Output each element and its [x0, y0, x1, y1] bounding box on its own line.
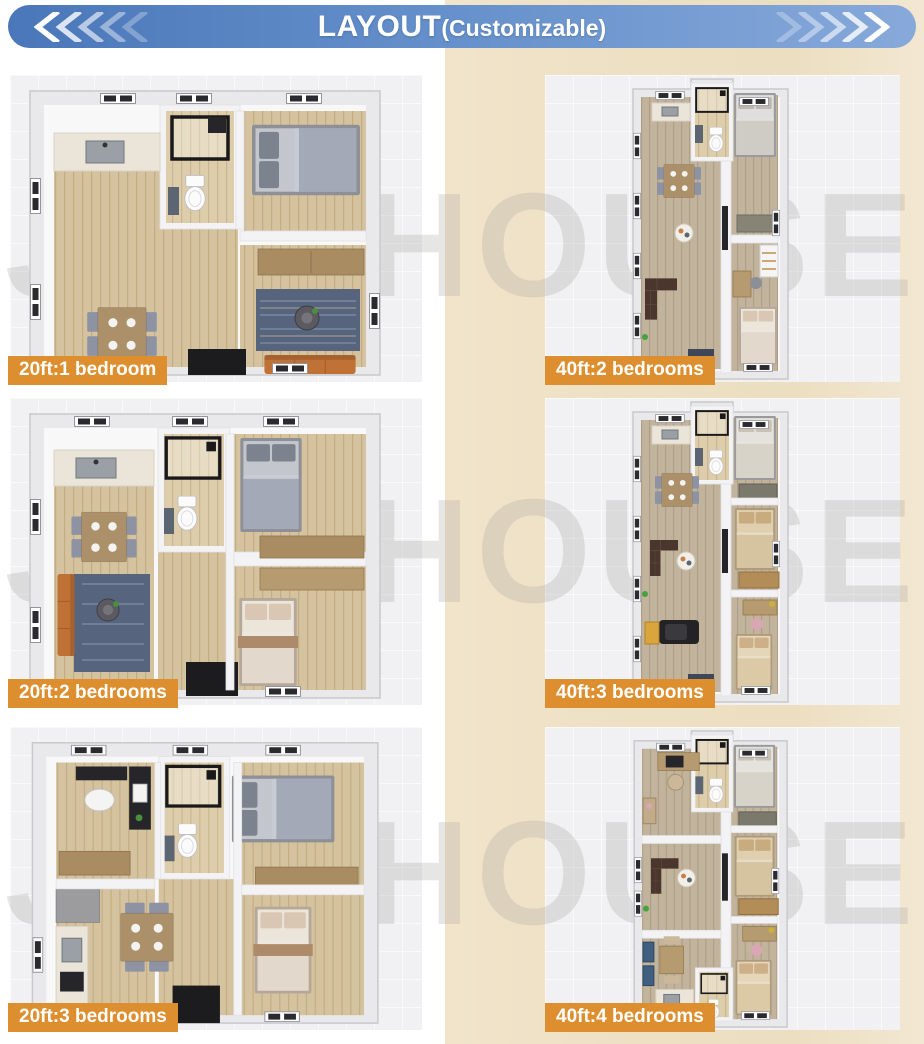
- wardrobe: [260, 536, 364, 558]
- header-banner: LAYOUT(Customizable): [8, 5, 916, 48]
- bathroom: [691, 735, 732, 812]
- dining-set: [121, 903, 174, 972]
- sofa: [57, 574, 74, 656]
- floorplan-panel-20ft-2-bedrooms: [10, 398, 422, 705]
- dining-set: [71, 512, 136, 562]
- bathroom: [159, 757, 230, 879]
- dining-set: [655, 473, 699, 506]
- side-table: [675, 224, 693, 242]
- floorplan-panel-40ft-4-bedrooms: [545, 727, 900, 1030]
- plant: [643, 906, 649, 912]
- wardrobe: [737, 215, 777, 232]
- tv-panel: [722, 529, 728, 573]
- floorplan-40ft-3-bedrooms-image: [545, 398, 900, 705]
- bed: [252, 125, 360, 195]
- bed: [254, 907, 313, 994]
- page-title-main: LAYOUT: [318, 10, 442, 43]
- floorplan-panel-20ft-1-bedroom: [10, 75, 422, 382]
- bed: [240, 438, 301, 532]
- side-table: [677, 552, 695, 570]
- massage-chair: [645, 620, 699, 644]
- dining-set: [657, 164, 701, 197]
- chest: [739, 899, 778, 915]
- bathroom: [160, 105, 240, 229]
- bed: [735, 836, 775, 897]
- wardrobe: [260, 568, 364, 590]
- plan-label-20ft-1-bedroom: 20ft:1 bedroom: [8, 356, 167, 385]
- door-mat: [188, 349, 246, 375]
- dining-set: [87, 308, 157, 361]
- kitchen: [652, 426, 690, 444]
- kitchen: [54, 450, 154, 486]
- floorplan-20ft-3-bedrooms-image: [10, 727, 422, 1030]
- bathroom: [691, 406, 733, 484]
- plant: [642, 591, 648, 597]
- tv-panel: [722, 853, 728, 900]
- floorplan-panel-20ft-3-bedrooms: [10, 727, 422, 1030]
- bed: [736, 634, 773, 690]
- bed: [232, 775, 335, 842]
- floorplan-panel-40ft-2-bedrooms: [545, 75, 900, 382]
- page-title: LAYOUT(Customizable): [8, 10, 916, 44]
- plant: [642, 334, 648, 340]
- bed: [238, 598, 298, 686]
- bed: [735, 508, 775, 570]
- bathroom: [691, 83, 733, 161]
- bed: [736, 960, 772, 1015]
- kitchen: [54, 133, 160, 171]
- plan-label-20ft-2-bedrooms: 20ft:2 bedrooms: [8, 679, 178, 708]
- floorplan-20ft-1-bedroom-image: [10, 75, 422, 382]
- plan-label-40ft-3-bedrooms: 40ft:3 bedrooms: [545, 679, 715, 708]
- floorplan-40ft-4-bedrooms-image: [545, 727, 900, 1030]
- layout-poster: JOY HOUSE JOY HOUSE JOY HOUSE LAYOUT(Cus…: [0, 0, 924, 1044]
- plan-label-40ft-2-bedrooms: 40ft:2 bedrooms: [545, 356, 715, 385]
- living-rug: [256, 289, 360, 351]
- bathroom: [158, 428, 230, 552]
- cabinet: [760, 245, 778, 277]
- side-table: [678, 869, 696, 887]
- floorplan-panel-40ft-3-bedrooms: [545, 398, 900, 705]
- floorplan-40ft-2-bedrooms-image: [545, 75, 900, 382]
- bed: [739, 307, 777, 365]
- plan-label-20ft-3-bedrooms: 20ft:3 bedrooms: [8, 1003, 178, 1032]
- dresser: [739, 812, 777, 826]
- dresser: [258, 249, 364, 275]
- door-mat: [173, 986, 220, 1024]
- page-title-sub: (Customizable): [441, 15, 606, 41]
- dresser: [739, 484, 777, 498]
- wardrobe: [59, 851, 130, 875]
- tv-panel: [722, 206, 728, 250]
- plan-label-40ft-4-bedrooms: 40ft:4 bedrooms: [545, 1003, 715, 1032]
- floorplan-20ft-2-bedrooms-image: [10, 398, 422, 705]
- chest: [739, 572, 779, 588]
- kitchen: [652, 103, 690, 121]
- living-rug: [74, 574, 150, 672]
